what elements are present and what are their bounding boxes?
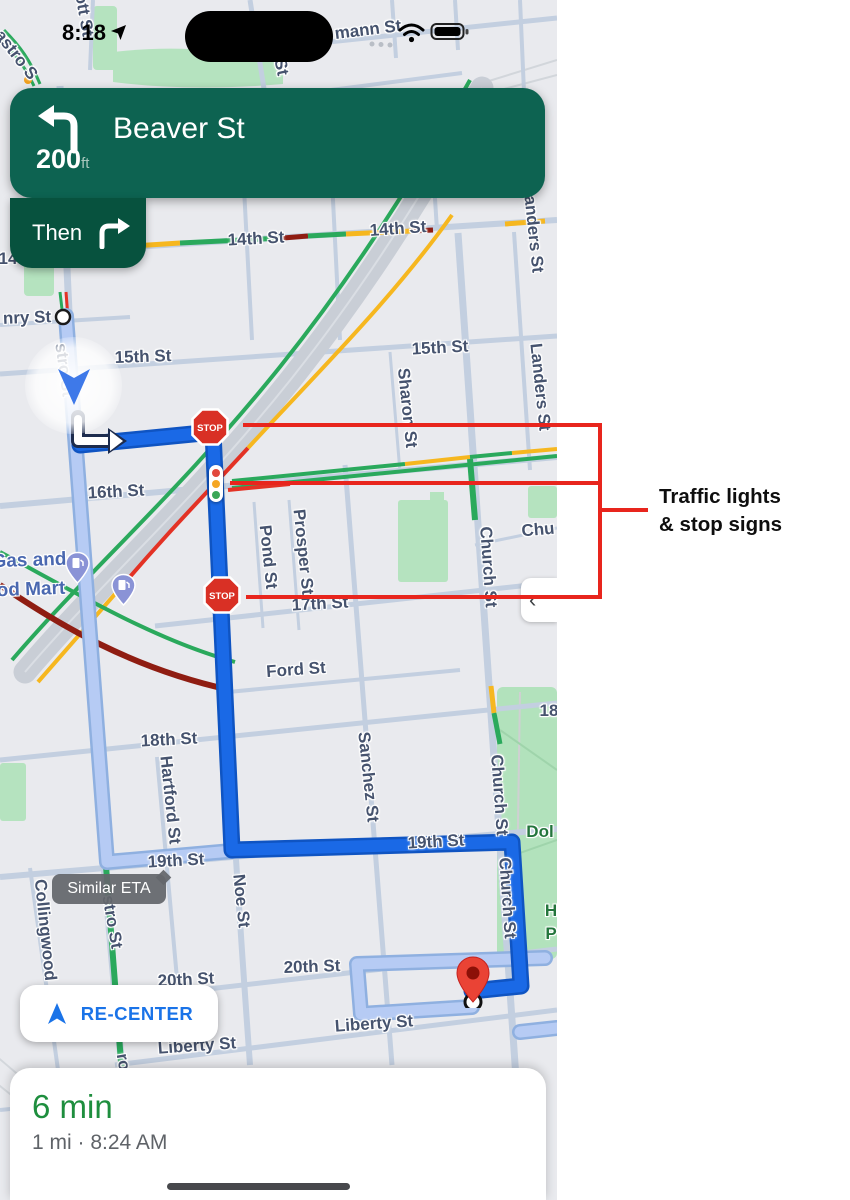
annotation-caption: Traffic lights & stop signs xyxy=(659,483,782,539)
annotation-line-middle xyxy=(230,481,602,485)
traffic-light-red-dot xyxy=(212,469,220,477)
poi-label-gas[interactable]: od Mart xyxy=(0,578,66,602)
status-bar: 8:18 xyxy=(0,0,557,62)
dynamic-island xyxy=(185,11,333,62)
street-label: 18 xyxy=(540,701,557,721)
stop-sign-icon: STOP xyxy=(191,408,229,446)
poi-label-park: P xyxy=(545,924,556,944)
street-label: Ford St xyxy=(266,658,327,682)
navigation-banner[interactable]: Beaver St 200ft xyxy=(10,88,545,198)
recenter-label: RE-CENTER xyxy=(81,1003,193,1025)
wifi-icon xyxy=(398,23,425,43)
traffic-light-green-dot xyxy=(212,491,220,499)
screenshot-stage: ott St astro S St mann St 14th St 14th S… xyxy=(0,0,850,1200)
annotation-connector-line xyxy=(602,508,648,512)
street-label: 19th St xyxy=(147,850,205,873)
gas-station-pin-icon[interactable] xyxy=(110,573,137,611)
annotation-line-top xyxy=(243,423,602,427)
trip-summary-sheet[interactable]: 6 min 1 mi · 8:24 AM xyxy=(10,1068,546,1200)
traffic-light-icon xyxy=(209,465,223,502)
similar-eta-bubble[interactable]: Similar ETA xyxy=(52,874,166,904)
similar-eta-label: Similar ETA xyxy=(67,880,150,898)
street-label: nry St xyxy=(3,307,52,329)
recenter-arrow-icon xyxy=(45,1002,69,1026)
street-label: 15th St xyxy=(411,337,469,360)
location-services-icon xyxy=(110,24,127,41)
annotation-line-bottom xyxy=(246,595,602,599)
poi-label-park: Dol xyxy=(526,822,553,842)
street-label: 20th St xyxy=(283,956,340,978)
stop-sign-text: STOP xyxy=(197,423,223,434)
trip-distance-arrival: 1 mi · 8:24 AM xyxy=(32,1131,167,1155)
street-label: 15th St xyxy=(114,346,171,368)
street-label: 14th St xyxy=(227,228,285,251)
trip-eta: 6 min xyxy=(32,1088,113,1126)
street-label: 14th St xyxy=(369,217,427,241)
annotation-caption-line2: & stop signs xyxy=(659,511,782,539)
chevron-left-icon: ‹ xyxy=(529,587,536,613)
then-label: Then xyxy=(32,220,82,246)
map-canvas[interactable]: ott St astro S St mann St 14th St 14th S… xyxy=(0,0,557,1200)
clock-time: 8:18 xyxy=(62,20,106,46)
poi-label-park: H xyxy=(545,901,557,921)
poi-label-gas[interactable]: Gas and xyxy=(0,549,67,574)
street-label: Chu xyxy=(521,519,556,542)
navigation-heading-arrow-icon xyxy=(53,365,95,407)
street-label: 18th St xyxy=(140,729,198,752)
destination-pin-icon[interactable] xyxy=(453,952,493,1013)
then-maneuver-panel[interactable]: Then xyxy=(10,198,146,268)
side-panel-collapse-tab[interactable]: ‹ xyxy=(521,578,557,622)
next-street-name: Beaver St xyxy=(113,112,245,146)
battery-icon xyxy=(430,22,470,42)
stop-sign-icon: STOP xyxy=(203,576,241,614)
street-label: 19th St xyxy=(407,831,465,854)
gas-station-pin-icon[interactable] xyxy=(64,551,91,589)
current-location-puck xyxy=(25,337,122,434)
svg-text:STOP: STOP xyxy=(209,591,235,602)
street-label: 16th St xyxy=(87,481,145,504)
recenter-button[interactable]: RE-CENTER xyxy=(20,985,218,1042)
annotation-caption-line1: Traffic lights xyxy=(659,483,782,511)
home-indicator[interactable] xyxy=(167,1183,350,1190)
turn-right-arrow-icon xyxy=(96,217,132,249)
traffic-light-yellow-dot xyxy=(212,480,220,488)
distance-to-turn: 200ft xyxy=(36,144,89,175)
